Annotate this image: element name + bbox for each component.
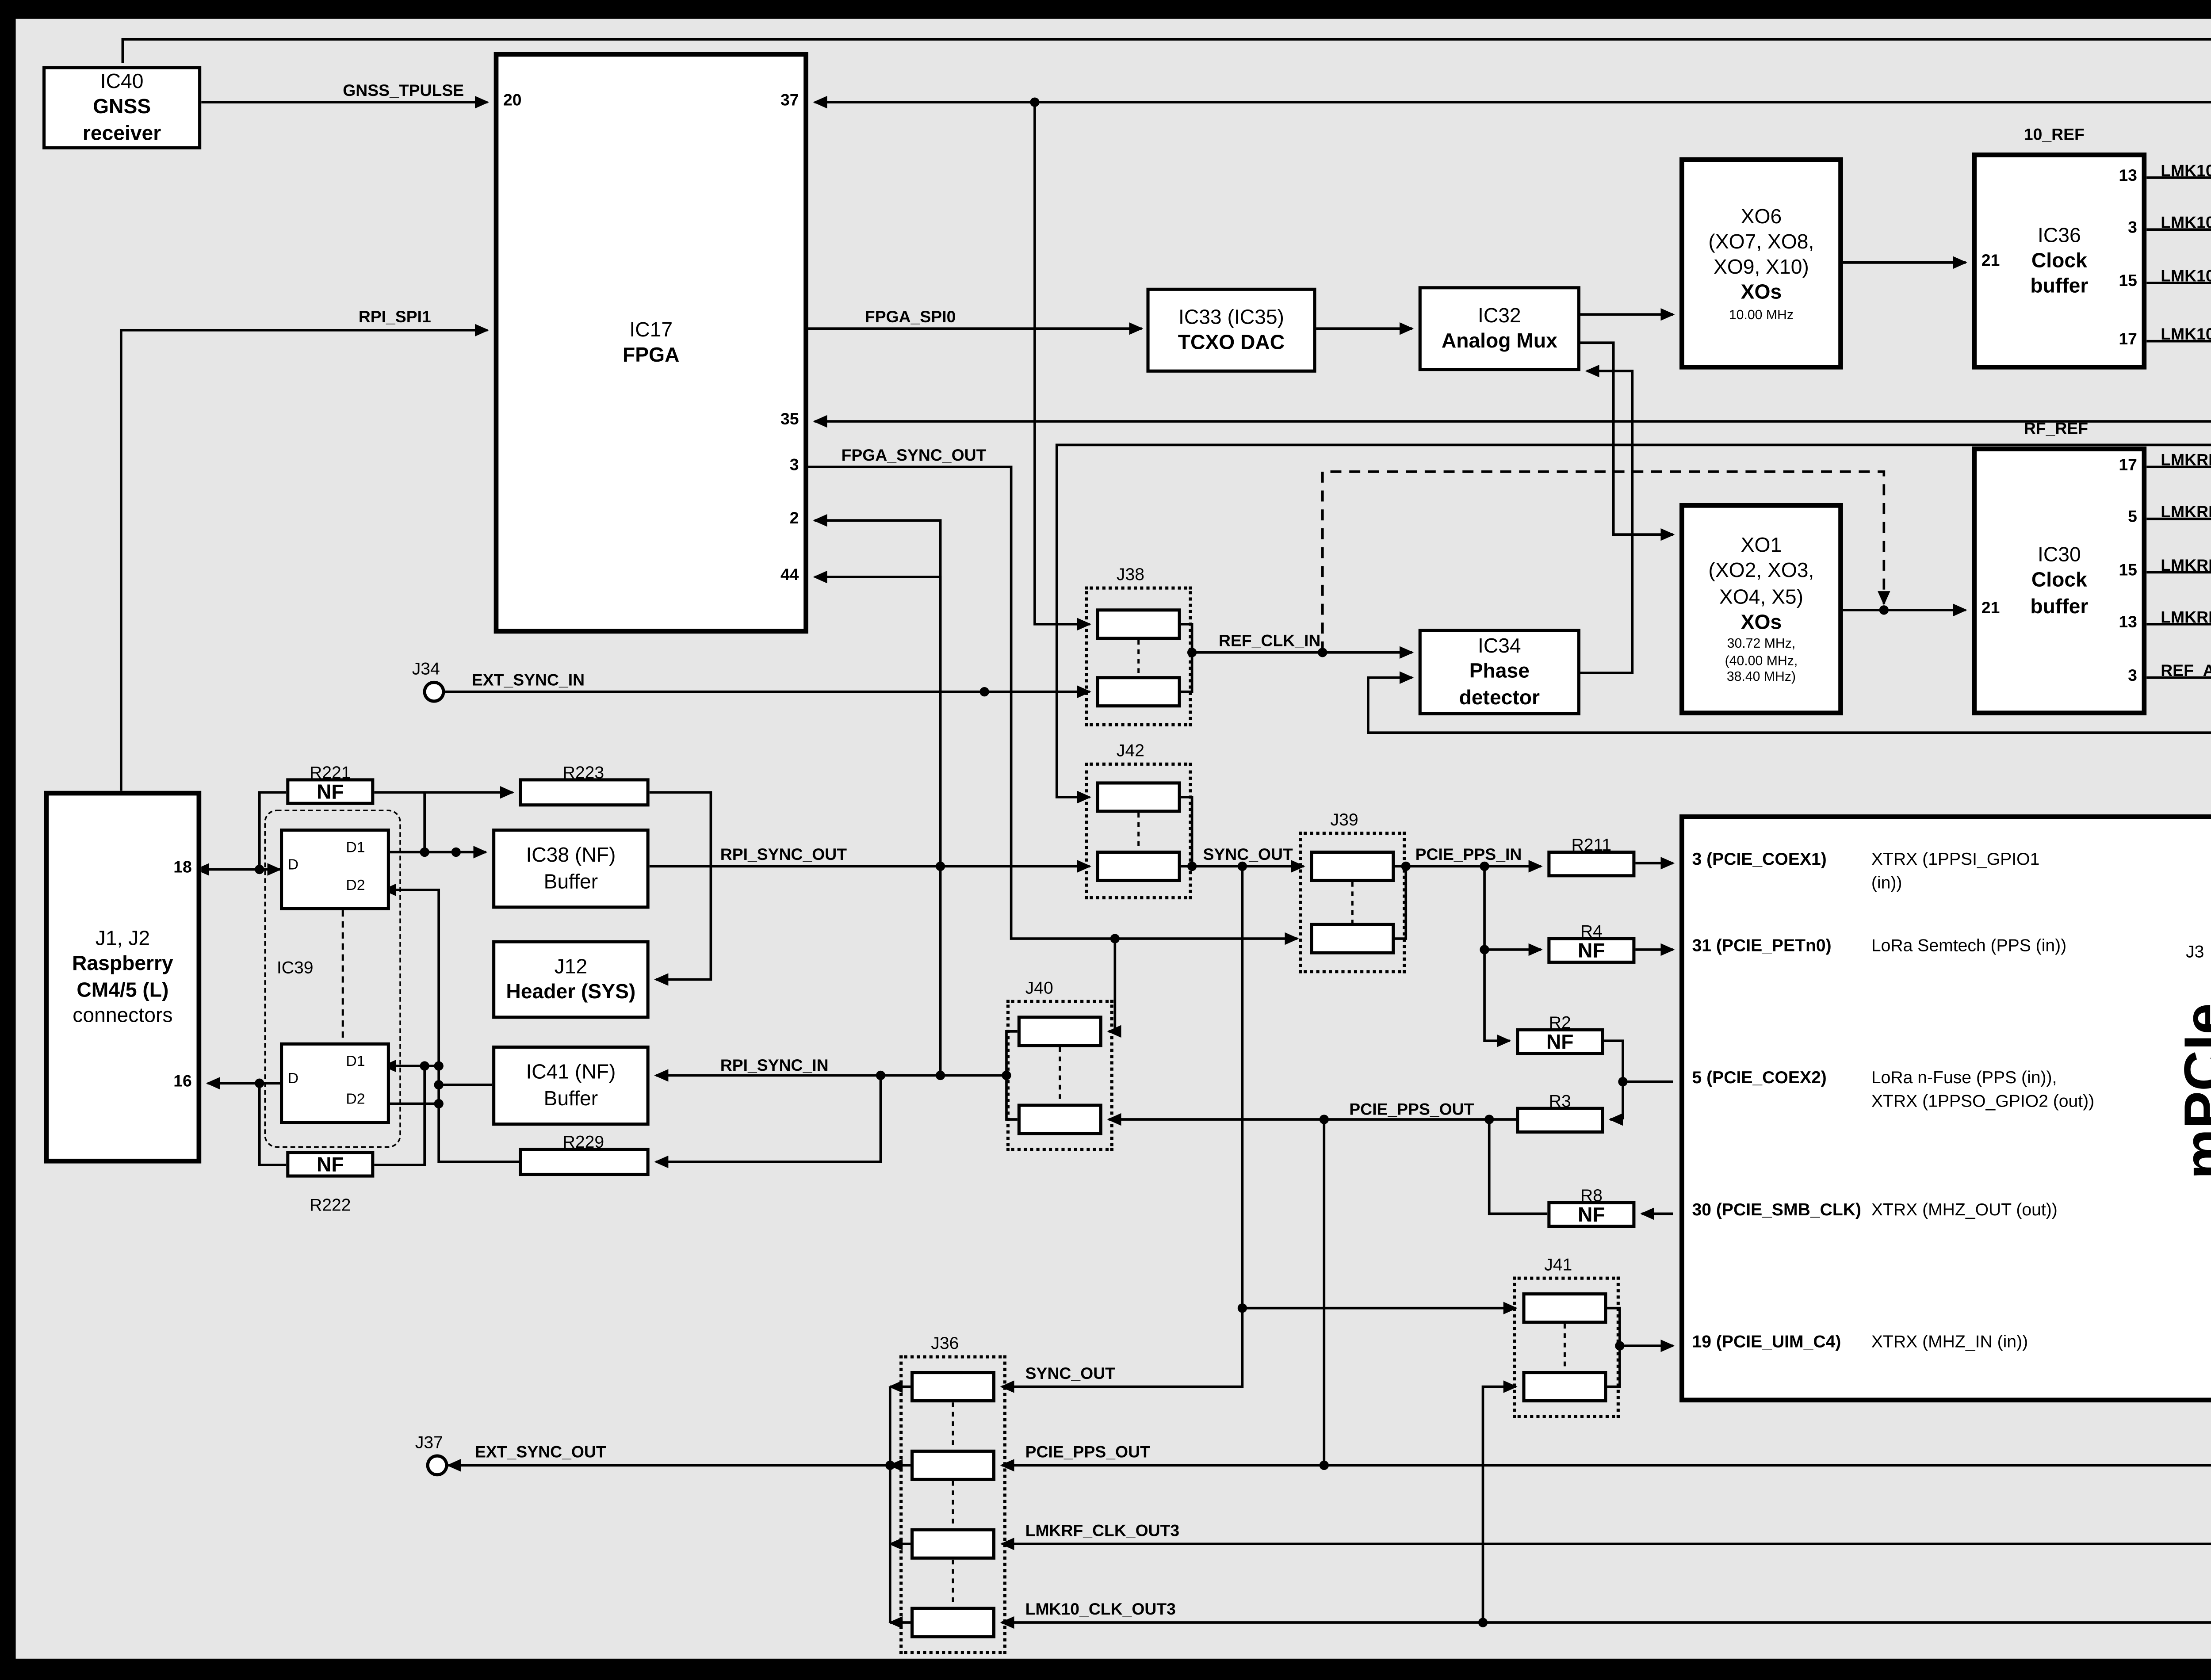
wire	[815, 577, 940, 866]
mpcie-pin-desc: (in))	[1871, 874, 1902, 893]
switch-terminal-d: D	[288, 1071, 298, 1088]
pin-number: 3	[790, 456, 799, 475]
net-label-lmk10-clk-out2: LMK10_CLK_OUT2	[2161, 162, 2211, 181]
net-label-sync-out: SYNC_OUT	[1025, 1365, 1115, 1384]
block-ic30-clock-buffer: IC30Clockbuffer	[1972, 447, 2146, 715]
net-label-lmk10-clk-out4: LMK10_CLK_OUT4	[2161, 325, 2211, 344]
block-xo6-line: XO6	[1741, 204, 1782, 229]
wire	[656, 1075, 881, 1162]
jumper-j36-pad	[910, 1528, 995, 1560]
net-label-ext-sync-out: EXT_SYNC_OUT	[475, 1443, 606, 1462]
mpcie-pin-desc: LoRa n-Fuse (PPS (in)),	[1871, 1069, 2057, 1088]
block-ic41-buffer-line: Buffer	[544, 1086, 598, 1111]
junction-dot	[420, 1061, 429, 1070]
block-raspberry-connectors: J1, J2RaspberryCM4/5 (L)connectors	[44, 791, 202, 1164]
pin-number: 18	[173, 859, 192, 878]
net-label-fpga-spi0: FPGA_SPI0	[865, 308, 956, 327]
net-label-gnss-tpulse: GNSS_TPULSE	[343, 82, 464, 101]
block-xo1: XO1(XO2, XO3,XO4, X5)XOs30.72 MHz,(40.00…	[1679, 503, 1843, 715]
jumper-j40-label: J40	[1025, 980, 1053, 999]
switch-terminal-d2: D2	[346, 1091, 365, 1108]
net-label-lmk10-clk-out3: LMK10_CLK_OUT3	[1025, 1600, 1176, 1619]
resistor-r222-nf-text: NF	[317, 1153, 344, 1176]
block-tcxo-dac-line: TCXO DAC	[1178, 330, 1285, 356]
block-j12-header-line: J12	[555, 954, 588, 980]
block-j12-header: J12Header (SYS)	[492, 940, 650, 1019]
switch-terminal-d1: D1	[346, 1054, 365, 1071]
mpcie-pin-desc: LoRa Semtech (PPS (in))	[1871, 937, 2066, 956]
block-gnss-receiver-line: GNSS	[93, 95, 151, 121]
block-raspberry-connectors-line: Raspberry	[72, 951, 173, 977]
pin-number: 21	[1981, 252, 2000, 271]
pin-number: 21	[1981, 599, 2000, 618]
net-label-rf-ref: RF_REF	[2024, 420, 2088, 439]
resistor-r3-label: R3	[1549, 1093, 1571, 1112]
jumper-j42-pad	[1096, 781, 1181, 813]
junction-dot	[451, 848, 461, 857]
block-ic36-clock-buffer-line: IC36	[2038, 223, 2081, 248]
block-ic41-buffer: IC41 (NF)Buffer	[492, 1046, 650, 1126]
resistor-r222: NF	[286, 1151, 374, 1177]
jumper-j36-pad	[910, 1450, 995, 1481]
junction-dot	[420, 848, 429, 857]
mpcie-ref-label: J3	[2186, 943, 2204, 962]
resistor-r229-label: R229	[563, 1134, 604, 1153]
block-phase-detector-line: IC34	[1478, 634, 1521, 660]
block-ic41-buffer-line: IC41 (NF)	[526, 1060, 616, 1086]
block-ic30-clock-buffer-line: IC30	[2038, 542, 2081, 568]
block-phase-detector: IC34Phasedetector	[1419, 629, 1580, 715]
block-ic36-clock-buffer-line: buffer	[2030, 274, 2088, 299]
resistor-r222-label: R222	[310, 1196, 351, 1215]
pin-number: 17	[2119, 456, 2137, 475]
net-label-lmkrf-clk-out4: LMKRF_CLK_OUT4	[2161, 451, 2211, 470]
wire	[815, 520, 940, 1075]
block-gnss-receiver: IC40GNSSreceiver	[42, 66, 201, 149]
jumper-j41-pad	[1522, 1371, 1607, 1402]
pin-number: 35	[780, 410, 799, 429]
block-ic36-clock-buffer-line: Clock	[2031, 248, 2087, 274]
pin-number: 20	[503, 91, 522, 110]
jumper-j39-label: J39	[1331, 811, 1358, 830]
block-xo6-small-line: 10.00 MHz	[1729, 306, 1794, 323]
junction-dot	[1478, 1618, 1488, 1627]
pin-number: 5	[2128, 508, 2137, 527]
switch-terminal-d2: D2	[346, 877, 365, 894]
jumper-j38-label: J38	[1117, 566, 1144, 585]
pin-number: 17	[2119, 330, 2137, 349]
junction-dot	[434, 1080, 444, 1089]
resistor-r221-label: R221	[310, 764, 351, 783]
net-label-pcie-pps-out: PCIE_PPS_OUT	[1025, 1443, 1150, 1462]
junction-dot	[936, 862, 945, 871]
block-ic38-buffer-line: Buffer	[544, 869, 598, 894]
resistor-r8-label: R8	[1580, 1187, 1603, 1206]
junction-dot	[1618, 1077, 1627, 1086]
block-xo6-line: (XO7, XO8,	[1708, 229, 1814, 255]
block-phase-detector-line: detector	[1459, 685, 1540, 710]
resistor-r8-nf-text: NF	[1578, 1203, 1605, 1226]
net-label-pcie-pps-out: PCIE_PPS_OUT	[1349, 1100, 1474, 1119]
connector-j34-label: J34	[412, 661, 440, 680]
block-xo1-line: (XO2, XO3,	[1708, 559, 1814, 584]
net-label-ref-clk-in: REF_CLK_IN	[1219, 632, 1320, 651]
net-label-10-ref: 10_REF	[2024, 126, 2085, 145]
mpcie-pin-name: 30 (PCIE_SMB_CLK)	[1692, 1201, 1861, 1220]
pin-number: 13	[2119, 167, 2137, 186]
block-xo6: XO6(XO7, XO8,XO9, X10)XOs10.00 MHz	[1679, 157, 1843, 370]
wire	[121, 330, 488, 791]
connector-j37	[426, 1454, 448, 1476]
jumper-j38-pad	[1096, 608, 1181, 640]
jumper-j41-pad	[1522, 1292, 1607, 1324]
resistor-r2-nf-text: NF	[1546, 1030, 1574, 1053]
mpcie-pin-name: 5 (PCIE_COEX2)	[1692, 1069, 1826, 1088]
block-fpga-line: FPGA	[623, 343, 679, 368]
jumper-j39-pad	[1310, 851, 1395, 882]
junction-dot	[434, 1099, 444, 1108]
block-tcxo-dac-line: IC33 (IC35)	[1178, 305, 1284, 330]
mpcie-pin-desc: XTRX (1PPSI_GPIO1	[1871, 851, 2039, 870]
switch-terminal-d: D	[288, 857, 298, 874]
mpcie-pin-name: 31 (PCIE_PETn0)	[1692, 937, 1831, 956]
resistor-r221-nf-text: NF	[317, 780, 344, 803]
pin-number: 16	[173, 1072, 192, 1091]
junction-dot	[876, 1071, 885, 1080]
resistor-r4-nf-text: NF	[1578, 939, 1605, 962]
resistor-r2-label: R2	[1549, 1014, 1571, 1033]
net-label-lmk10-clk-out0: LMK10_CLK_OUT0	[2161, 214, 2211, 233]
net-label-lmkrf-clk-out2: LMKRF_CLK_OUT2	[2161, 608, 2211, 627]
wire	[122, 39, 2211, 178]
wire	[1580, 371, 1632, 673]
jumper-j42-pad	[1096, 851, 1181, 882]
block-xo1-small-line: 30.72 MHz,	[1727, 635, 1796, 652]
junction-dot	[980, 687, 989, 696]
jumper-j42-label: J42	[1117, 742, 1144, 761]
connector-j37-label: J37	[415, 1434, 443, 1453]
junction-dot	[1320, 1461, 1329, 1470]
net-label-lmkrf-clk-out1: LMKRF_CLK_OUT1	[2161, 503, 2211, 522]
junction-dot	[434, 1061, 444, 1070]
net-label-lmkrf-clk-out3: LMKRF_CLK_OUT3	[2161, 557, 2211, 576]
junction-dot	[1110, 934, 1120, 943]
junction-dot	[1030, 97, 1039, 107]
pin-number: 13	[2119, 613, 2137, 632]
block-xo1-small-line: 38.40 MHz)	[1727, 668, 1796, 685]
block-ic38-buffer-line: IC38 (NF)	[526, 843, 616, 869]
mpcie-pin-name: 19 (PCIE_UIM_C4)	[1692, 1333, 1841, 1352]
resistor-r223-label: R223	[563, 764, 604, 783]
block-analog-mux-line: IC32	[1478, 303, 1521, 328]
mpcie-pin-name: 3 (PCIE_COEX1)	[1692, 851, 1826, 870]
ic39-label: IC39	[277, 959, 314, 978]
block-tcxo-dac: IC33 (IC35)TCXO DAC	[1146, 288, 1316, 373]
junction-dot	[1480, 945, 1489, 954]
block-analog-mux-line: Analog Mux	[1442, 328, 1557, 354]
block-gnss-receiver-line: IC40	[100, 69, 144, 95]
junction-dot	[1879, 605, 1889, 615]
block-j12-header-line: Header (SYS)	[506, 980, 635, 1005]
block-fpga-line: IC17	[629, 317, 673, 343]
net-label-rpi-sync-out: RPI_SYNC_OUT	[720, 846, 847, 865]
wire	[1035, 102, 1090, 624]
block-phase-detector-line: Phase	[1469, 659, 1530, 685]
block-ic30-clock-buffer-line: buffer	[2030, 594, 2088, 619]
junction-dot	[1484, 1115, 1494, 1124]
clock-distribution-schematic: IC40GNSSreceiverIC17FPGA2037353244IC33 (…	[0, 0, 2211, 1679]
net-label-pcie-pps-in: PCIE_PPS_IN	[1415, 846, 1522, 865]
block-gnss-receiver-line: receiver	[83, 120, 161, 146]
wire	[808, 467, 1297, 939]
mpcie-pin-desc: XTRX (MHZ_IN (in))	[1871, 1333, 2028, 1352]
switch-terminal-d1: D1	[346, 840, 365, 857]
net-label-lmk10-clk-out3: LMK10_CLK_OUT3	[2161, 267, 2211, 286]
net-label-sync-out: SYNC_OUT	[1203, 846, 1293, 865]
block-raspberry-connectors-line: connectors	[73, 1003, 172, 1028]
jumper-j36-label: J36	[931, 1335, 959, 1354]
block-xo6-line: XOs	[1741, 281, 1782, 306]
wire	[650, 792, 711, 979]
net-label-ext-sync-in: EXT_SYNC_IN	[472, 671, 585, 690]
net-label-rpi-spi1: RPI_SPI1	[359, 308, 431, 327]
block-ic38-buffer: IC38 (NF)Buffer	[492, 829, 650, 909]
mpcie-name-label: mPCIe	[2172, 1003, 2211, 1179]
jumper-j36-pad	[910, 1607, 995, 1638]
mpcie-pin-desc: XTRX (MHZ_OUT (out))	[1871, 1201, 2058, 1220]
pin-number: 3	[2128, 667, 2137, 686]
net-label-rpi-sync-in: RPI_SYNC_IN	[720, 1057, 829, 1076]
junction-dot	[936, 1071, 945, 1080]
jumper-j40-pad	[1018, 1016, 1102, 1047]
block-xo1-line: XOs	[1741, 610, 1782, 635]
block-raspberry-connectors-line: CM4/5 (L)	[77, 977, 168, 1003]
block-raspberry-connectors-line: J1, J2	[96, 926, 150, 952]
junction-dot	[885, 1461, 895, 1470]
net-label-ref-adf: REF_ADF	[2161, 662, 2211, 681]
junction-dot	[255, 1079, 264, 1088]
block-xo6-line: XO9, X10)	[1714, 255, 1809, 281]
pin-number: 37	[780, 91, 799, 110]
connector-j34	[423, 681, 445, 703]
pin-number: 3	[2128, 218, 2137, 237]
resistor-r211-label: R211	[1572, 836, 1612, 855]
junction-dot	[255, 865, 264, 874]
jumper-j38-pad	[1096, 676, 1181, 707]
block-xo1-small-line: (40.00 MHz,	[1725, 652, 1798, 669]
net-label-fpga-sync-out: FPGA_SYNC_OUT	[842, 447, 987, 466]
resistor-r4-label: R4	[1580, 923, 1603, 942]
jumper-j40-pad	[1018, 1103, 1102, 1135]
block-xo1-line: XO4, X5)	[1719, 584, 1803, 610]
block-ic30-clock-buffer-line: Clock	[2031, 568, 2087, 594]
block-fpga: IC17FPGA	[494, 52, 808, 634]
pin-number: 15	[2119, 561, 2137, 580]
mpcie-pin-desc: XTRX (1PPSO_GPIO2 (out))	[1871, 1093, 2094, 1112]
block-xo1-line: XO1	[1741, 533, 1782, 559]
pin-number: 15	[2119, 272, 2137, 291]
jumper-j41-label: J41	[1544, 1256, 1572, 1275]
pin-number: 44	[780, 566, 799, 585]
junction-dot	[1320, 1115, 1329, 1124]
wire	[1484, 950, 1510, 1041]
wire	[1483, 1387, 1516, 1623]
junction-dot	[1238, 1303, 1247, 1313]
schematic-scale-wrapper: IC40GNSSreceiverIC17FPGA2037353244IC33 (…	[0, 0, 2211, 1679]
jumper-j36-pad	[910, 1371, 995, 1402]
wire	[1484, 866, 1541, 949]
jumper-j39-pad	[1310, 923, 1395, 954]
pin-number: 2	[790, 509, 799, 528]
block-analog-mux: IC32Analog Mux	[1419, 286, 1580, 371]
net-label-lmkrf-clk-out3: LMKRF_CLK_OUT3	[1025, 1522, 1180, 1541]
